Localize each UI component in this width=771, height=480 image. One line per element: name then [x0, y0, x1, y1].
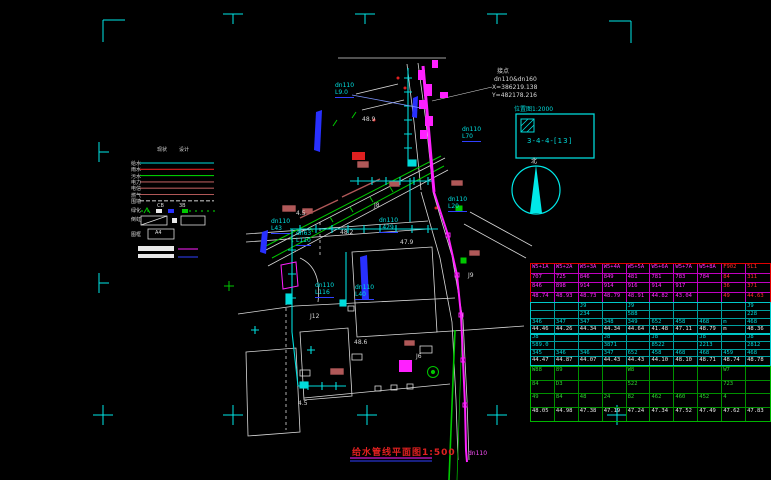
- detail-box: [516, 114, 594, 158]
- table-cell: 48.79: [603, 293, 627, 303]
- table-cell: 47.24: [627, 408, 651, 422]
- table-cell: 84: [722, 274, 746, 284]
- table-cell: 228: [746, 311, 770, 319]
- table-cell: J8: [746, 334, 770, 342]
- spot-label: J12: [310, 314, 319, 320]
- table-cell: J8: [531, 334, 555, 342]
- table-cell: [674, 342, 698, 350]
- table-cell: [579, 334, 603, 342]
- table-cell: 43.04: [674, 293, 698, 303]
- table-section: J9J9J9234588228346347347348349652458468m…: [530, 302, 771, 335]
- spot-label: 48.9: [362, 117, 375, 123]
- table-cell: J9: [579, 303, 603, 311]
- table-cell: [674, 367, 698, 381]
- detail-box-label: 位置图1:2000: [514, 104, 553, 113]
- north-arrow: [512, 165, 560, 214]
- table-cell: 588: [627, 311, 651, 319]
- table-cell: 3871: [603, 342, 627, 350]
- table-cell: W5+1A: [531, 264, 555, 274]
- legend-row-label: 围墙: [131, 198, 141, 205]
- table-cell: 347: [579, 319, 603, 327]
- table-cell: [746, 381, 770, 395]
- table-cell: 917: [674, 283, 698, 293]
- table-cell: 725: [555, 274, 579, 284]
- table-cell: 914: [650, 283, 674, 293]
- table-cell: W5+2A: [555, 264, 579, 274]
- pipe-label: dn110L9.0: [335, 83, 354, 98]
- table-cell: [555, 334, 579, 342]
- north-label: 北: [531, 156, 537, 165]
- table-cell: 48.10: [674, 357, 698, 365]
- table-cell: W5+6A: [650, 264, 674, 274]
- table-cell: [603, 311, 627, 319]
- table-cell: [555, 342, 579, 350]
- pipe-label: dn110L43: [271, 219, 290, 234]
- table-cell: 349: [627, 319, 651, 327]
- legend-extra-label: 图框: [131, 231, 141, 238]
- table-cell: 44.47: [531, 357, 555, 365]
- table-cell: [674, 381, 698, 395]
- table-cell: 345: [531, 350, 555, 358]
- table-section: W8889W8W784D3522723498448248246246045244…: [530, 366, 771, 422]
- table-cell: J8: [650, 334, 674, 342]
- table-cell: 44.82: [650, 293, 674, 303]
- table-cell: [579, 367, 603, 381]
- table-cell: W5+5A: [627, 264, 651, 274]
- table-cell: 48: [579, 394, 603, 408]
- table-cell: m: [722, 319, 746, 327]
- table-cell: J9: [746, 303, 770, 311]
- table-cell: 462: [650, 394, 674, 408]
- table-cell: 8522: [650, 342, 674, 350]
- table-cell: 5L1: [746, 264, 770, 274]
- connection-note-line1: 接点: [497, 68, 509, 76]
- legend-header-design: 设计: [179, 146, 189, 153]
- pipe-label: dn110L20: [448, 197, 467, 212]
- table-cell: 916: [627, 283, 651, 293]
- spot-label: J8: [374, 203, 380, 209]
- cad-sheet: 接点 dn110&dn160 X=386219.138 Y=482178.216…: [0, 0, 771, 480]
- table-cell: [650, 311, 674, 319]
- spot-label: 4.5: [298, 401, 308, 407]
- magenta-pipeline: [178, 60, 467, 462]
- table-cell: W8: [627, 367, 651, 381]
- spot-label: J6: [416, 354, 422, 360]
- table-cell: [698, 283, 722, 293]
- green-lines: [224, 112, 466, 480]
- table-cell: 48.91: [627, 293, 651, 303]
- table-cell: 468: [746, 350, 770, 358]
- table-cell: 459: [722, 350, 746, 358]
- connection-note-line2: dn110&dn160: [494, 76, 537, 84]
- table-cell: 468: [674, 350, 698, 358]
- detail-box-ref: 3-4-4-[13]: [527, 137, 572, 145]
- table-cell: 652: [650, 319, 674, 327]
- table-cell: 48.74: [531, 293, 555, 303]
- table-cell: 846: [579, 274, 603, 284]
- table-cell: [722, 311, 746, 319]
- table-cell: 47.34: [650, 408, 674, 422]
- table-cell: W5+7A: [674, 264, 698, 274]
- table-cell: 347: [555, 319, 579, 327]
- table-cell: [722, 342, 746, 350]
- table-cell: [698, 303, 722, 311]
- table-cell: 49: [531, 394, 555, 408]
- table-cell: 84: [555, 394, 579, 408]
- spot-label: 47.9: [400, 240, 413, 246]
- table-cell: [722, 303, 746, 311]
- table-cell: 371: [746, 283, 770, 293]
- legend-extra-label: 倒虹: [131, 216, 141, 223]
- legend-header-existing: 现状: [157, 146, 167, 153]
- table-cell: 914: [603, 283, 627, 293]
- table-cell: 784: [698, 274, 722, 284]
- drawing-title: 给水管线平面图1:500: [352, 445, 456, 458]
- table-cell: 82: [627, 394, 651, 408]
- legend-extra-label: 绿化: [131, 207, 141, 214]
- table-cell: W5+4A: [603, 264, 627, 274]
- table-cell: W88: [531, 367, 555, 381]
- table-cell: 49: [722, 293, 746, 303]
- table-cell: 4: [722, 394, 746, 408]
- legend-graphics: [138, 163, 215, 258]
- basemap-lines: [238, 58, 532, 460]
- table-cell: 781: [650, 274, 674, 284]
- table-cell: [722, 334, 746, 342]
- table-cell: 47.49: [698, 408, 722, 422]
- table-cell: 898: [555, 283, 579, 293]
- table-cell: [698, 381, 722, 395]
- table-cell: D3: [555, 381, 579, 395]
- spot-label: dn110: [468, 451, 487, 457]
- table-cell: J9: [627, 303, 651, 311]
- table-cell: 458: [674, 319, 698, 327]
- table-cell: 589.0: [531, 342, 555, 350]
- table-cell: 783: [674, 274, 698, 284]
- table-cell: 846: [531, 283, 555, 293]
- table-cell: [674, 311, 698, 319]
- table-cell: 311: [746, 274, 770, 284]
- table-cell: [603, 303, 627, 311]
- table-cell: 468: [698, 319, 722, 327]
- table-cell: 914: [579, 283, 603, 293]
- table-cell: 44.43: [627, 357, 651, 365]
- table-cell: 458: [650, 350, 674, 358]
- table-cell: 849: [603, 274, 627, 284]
- table-cell: 347: [603, 350, 627, 358]
- table-cell: 36: [722, 283, 746, 293]
- legend-a4-label: A4: [155, 230, 162, 236]
- pipe-label: dn110L116: [315, 283, 334, 298]
- table-cell: 48.78: [746, 357, 770, 365]
- table-cell: 346: [555, 350, 579, 358]
- table-cell: 2812: [746, 342, 770, 350]
- table-cell: W7: [722, 367, 746, 381]
- table-cell: 44.63: [746, 293, 770, 303]
- pipe-label: dn110L429: [379, 218, 398, 233]
- table-cell: [603, 381, 627, 395]
- table-cell: 47.19: [603, 408, 627, 422]
- table-cell: 47.62: [722, 408, 746, 422]
- table-cell: [650, 303, 674, 311]
- legend-extra-label: 3B: [179, 203, 186, 209]
- table-cell: [698, 311, 722, 319]
- spot-label: J9: [468, 273, 474, 279]
- table-cell: 460: [674, 394, 698, 408]
- table-cell: [627, 334, 651, 342]
- table-cell: 468: [698, 350, 722, 358]
- table-cell: [746, 367, 770, 381]
- pipe-label: dn110L70: [462, 127, 481, 142]
- table-cell: 48.71: [698, 357, 722, 365]
- table-cell: 723: [722, 381, 746, 395]
- table-cell: [674, 334, 698, 342]
- table-cell: [698, 367, 722, 381]
- table-cell: 47.38: [579, 408, 603, 422]
- table-cell: [579, 342, 603, 350]
- table-cell: [531, 311, 555, 319]
- table-cell: [650, 381, 674, 395]
- table-cell: 44.10: [650, 357, 674, 365]
- table-cell: 2213: [698, 342, 722, 350]
- table-cell: W5+8A: [698, 264, 722, 274]
- connection-note-line3: X=386219.138: [492, 84, 537, 92]
- table-cell: 468: [746, 319, 770, 327]
- table-cell: [674, 303, 698, 311]
- table-cell: J8: [603, 334, 627, 342]
- table-cell: [603, 367, 627, 381]
- table-cell: [555, 311, 579, 319]
- table-cell: 44.98: [555, 408, 579, 422]
- table-cell: 652: [627, 350, 651, 358]
- table-cell: 24: [603, 394, 627, 408]
- table-cell: 44.87: [555, 357, 579, 365]
- table-cell: 47.52: [674, 408, 698, 422]
- pipe-label: dn110L40: [355, 285, 374, 300]
- table-cell: 346: [579, 350, 603, 358]
- table-cell: [650, 367, 674, 381]
- table-cell: 89: [555, 367, 579, 381]
- table-section: W5+1AW5+2AW5+3AW5+4AW5+5AW5+6AW5+7AW5+8A…: [530, 263, 771, 303]
- table-cell: 44.43: [603, 357, 627, 365]
- table-cell: [627, 342, 651, 350]
- table-cell: 481: [627, 274, 651, 284]
- legend-extra-label: CB: [157, 203, 164, 209]
- table-cell: 48.05: [531, 408, 555, 422]
- table-cell: 47.83: [746, 408, 770, 422]
- table-cell: F902: [722, 264, 746, 274]
- table-cell: 234: [579, 311, 603, 319]
- table-cell: 707: [531, 274, 555, 284]
- table-section: J8J8J8J8J8589.03871852222132812345346346…: [530, 333, 771, 366]
- table-cell: [698, 293, 722, 303]
- table-cell: 348: [603, 319, 627, 327]
- table-cell: J8: [698, 334, 722, 342]
- table-cell: 44.07: [579, 357, 603, 365]
- table-cell: 48.74: [722, 357, 746, 365]
- table-cell: 48.93: [555, 293, 579, 303]
- pipe-label: dn63L110: [296, 231, 311, 246]
- table-cell: 48.73: [579, 293, 603, 303]
- table-cell: [746, 394, 770, 408]
- table-cell: 522: [627, 381, 651, 395]
- table-cell: [531, 303, 555, 311]
- table-cell: 346: [531, 319, 555, 327]
- spot-label: 48.6: [354, 340, 367, 346]
- table-cell: [579, 381, 603, 395]
- connection-note-line4: Y=482178.216: [492, 92, 537, 100]
- table-cell: 452: [698, 394, 722, 408]
- table-cell: 84: [531, 381, 555, 395]
- table-cell: [555, 303, 579, 311]
- table-cell: W5+3A: [579, 264, 603, 274]
- spot-label: 48.2: [340, 230, 353, 236]
- spot-label: 4.5: [296, 211, 306, 217]
